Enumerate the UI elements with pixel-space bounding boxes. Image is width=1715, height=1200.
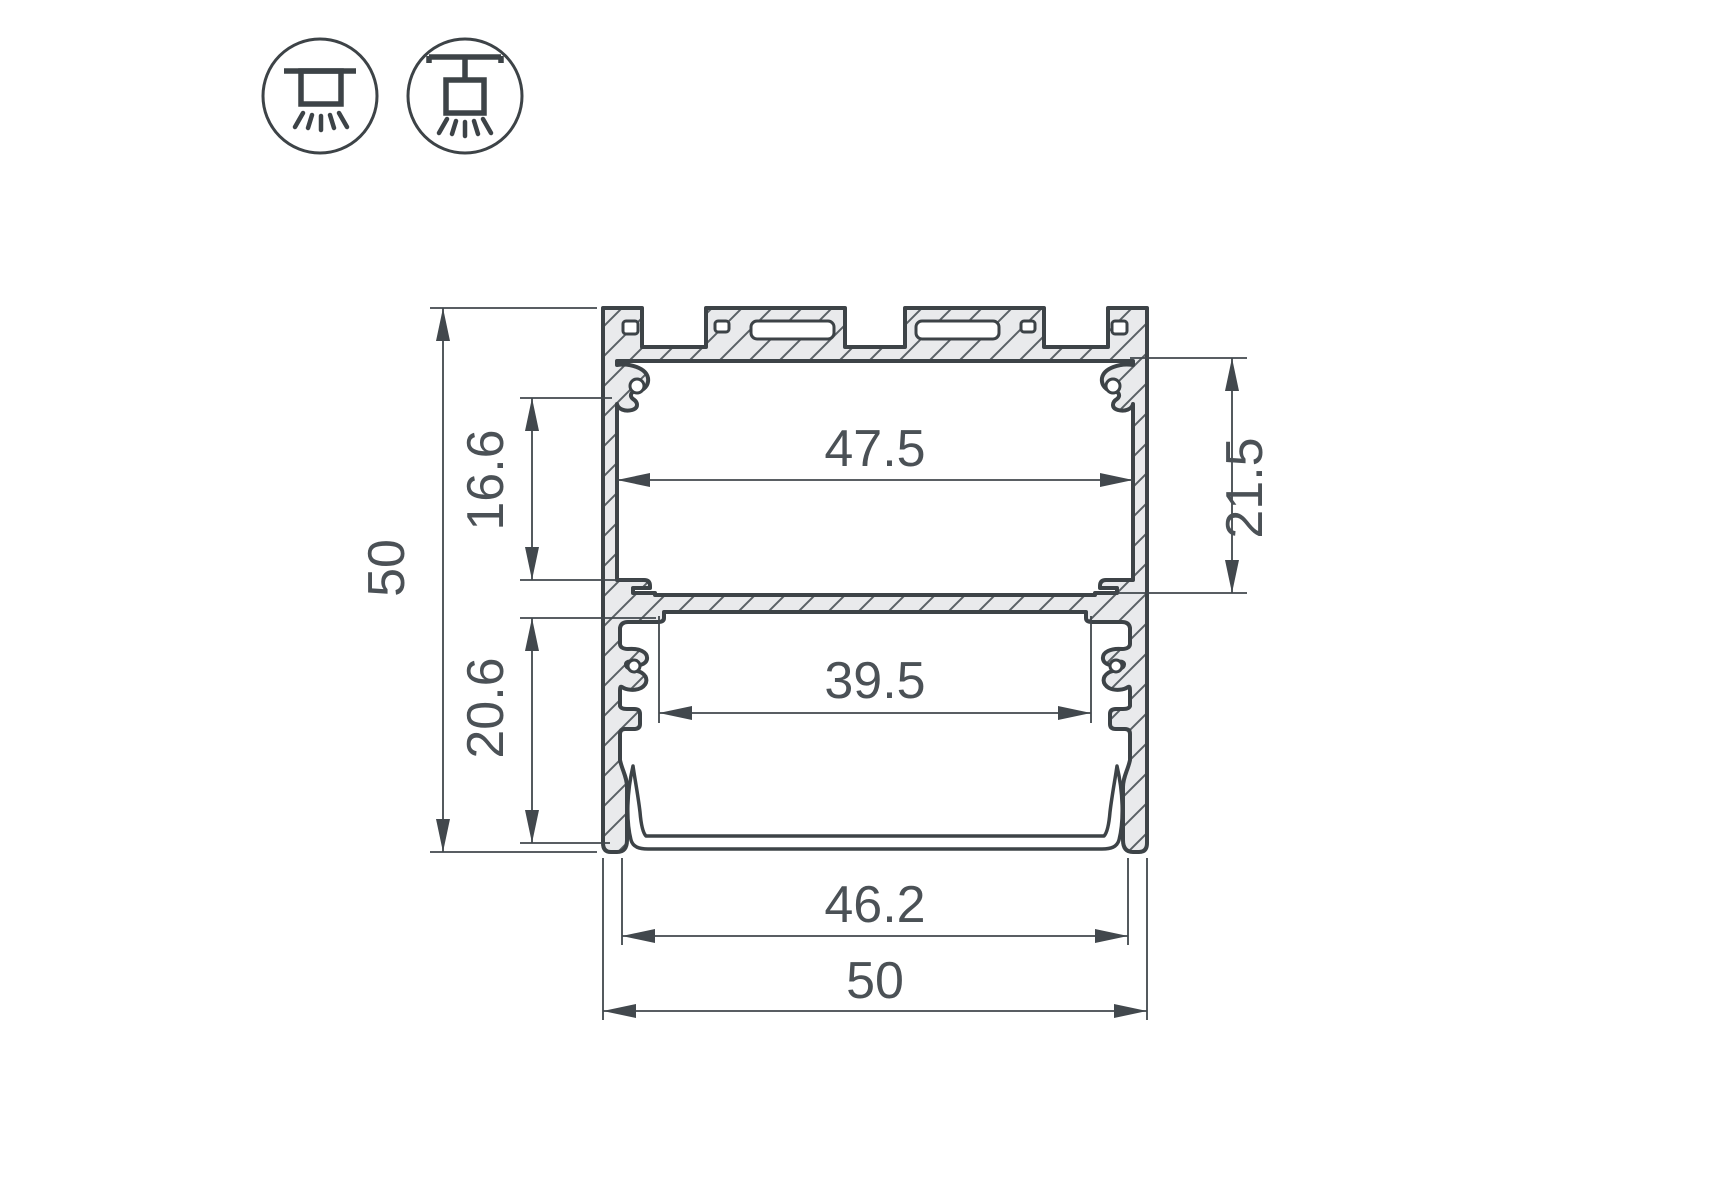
- drawing-canvas: 50 16.6 20.6 47.5 21.5 39.5: [0, 0, 1715, 1200]
- pendant-mount-icon: [408, 39, 522, 153]
- dim-label-width-total: 50: [846, 952, 904, 1010]
- profile-technical-drawing: 50 16.6 20.6 47.5 21.5 39.5: [0, 0, 1715, 1200]
- dim-label-lower-cavity-left: 20.6: [457, 657, 515, 758]
- dim-label-upper-cavity-left: 16.6: [457, 429, 515, 530]
- dim-label-height-total: 50: [358, 539, 416, 597]
- dim-label-inner-width-bottom: 39.5: [824, 652, 925, 710]
- dim-label-inner-width-top: 47.5: [824, 420, 925, 478]
- dim-diffuser-width: 46.2: [622, 858, 1128, 945]
- dim-inner-width-top: 47.5: [617, 420, 1133, 487]
- profile-cross-section: [560, 270, 1190, 890]
- surface-mount-icon: [263, 39, 377, 153]
- dim-label-diffuser-width: 46.2: [824, 876, 925, 934]
- dim-inner-width-bottom: 39.5: [659, 616, 1091, 723]
- dim-label-upper-cavity-right: 21.5: [1216, 437, 1274, 538]
- diffuser-lens: [628, 766, 1122, 849]
